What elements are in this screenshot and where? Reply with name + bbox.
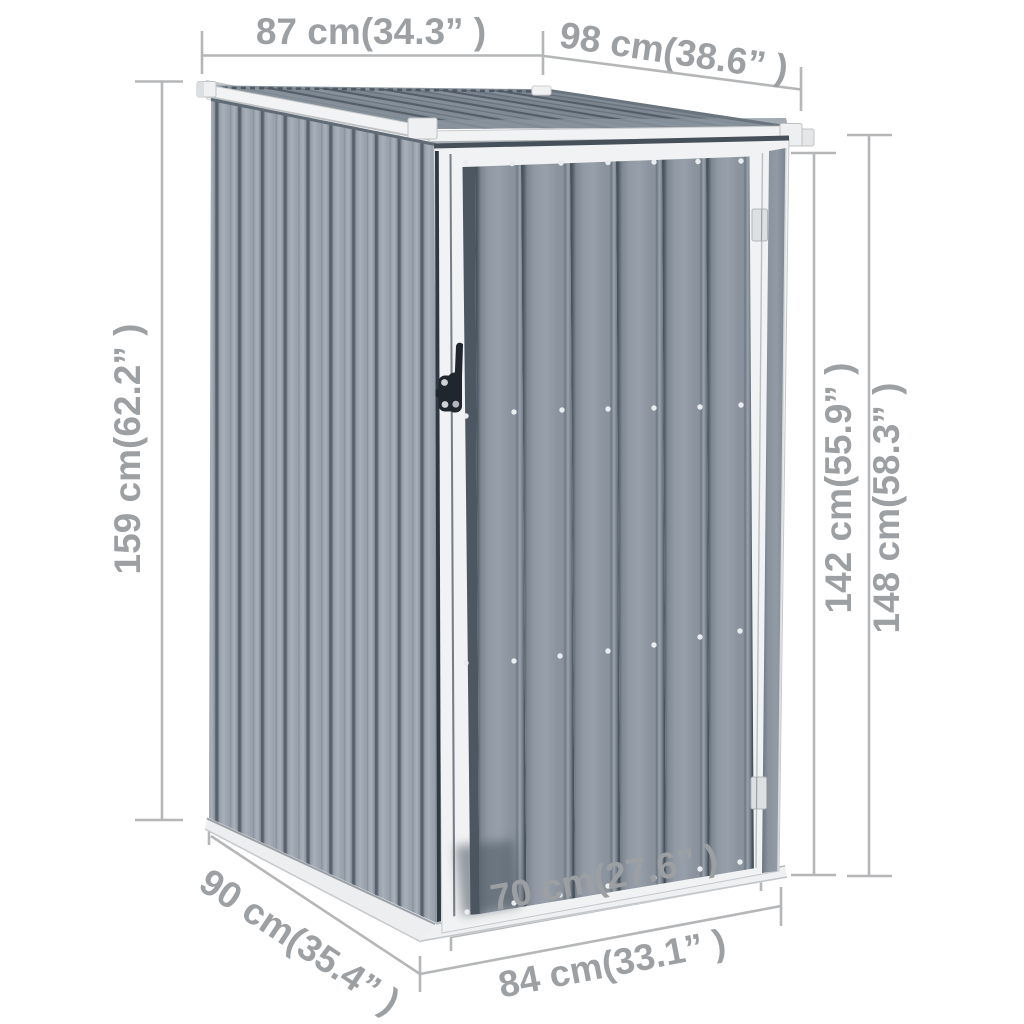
svg-text:87 cm(34.3” ): 87 cm(34.3” ) — [256, 11, 486, 52]
svg-text:148 cm(58.3” ): 148 cm(58.3” ) — [866, 383, 907, 634]
svg-text:159 cm(62.2” ): 159 cm(62.2” ) — [107, 324, 148, 575]
svg-text:142 cm(55.9” ): 142 cm(55.9” ) — [818, 363, 859, 614]
